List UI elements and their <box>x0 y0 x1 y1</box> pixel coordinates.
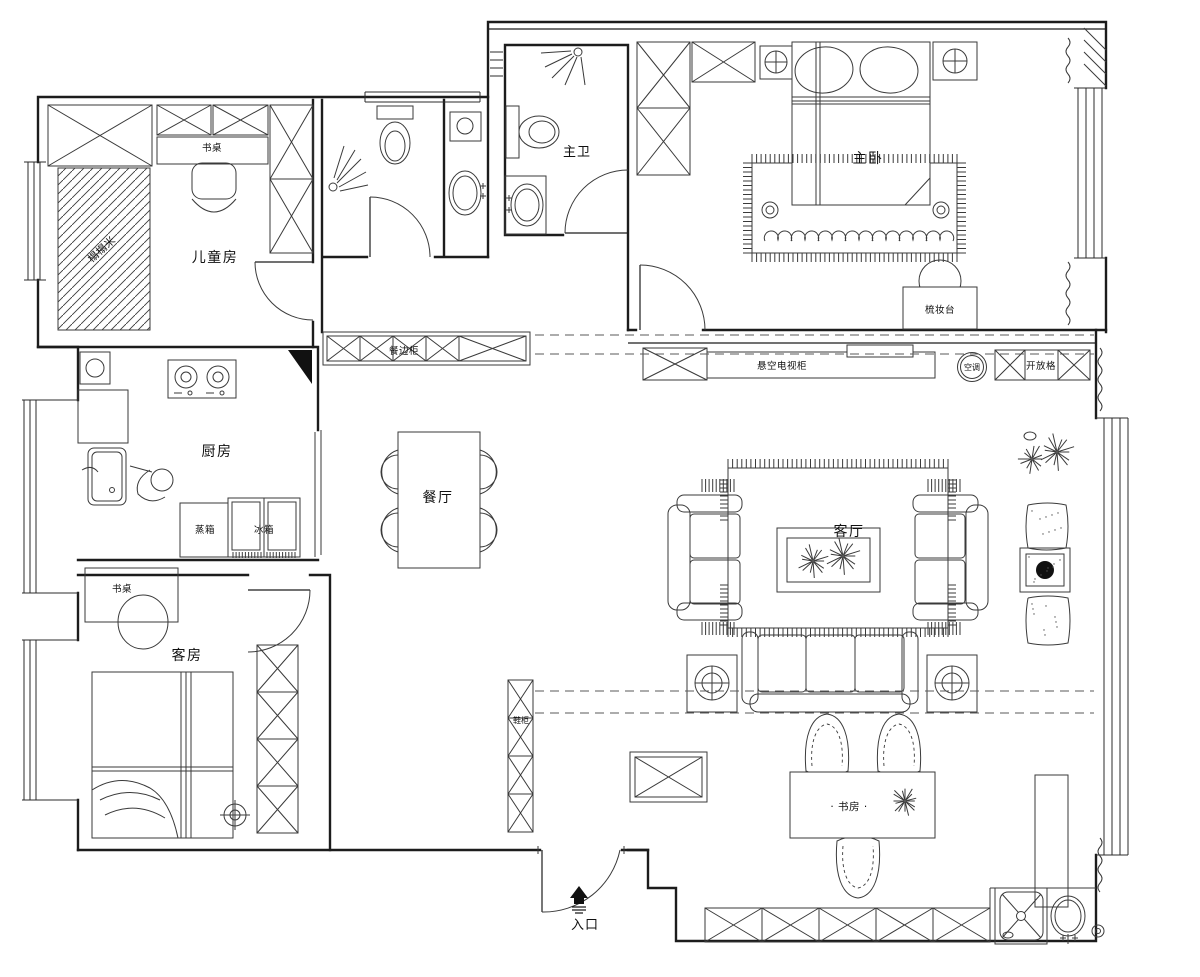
sink-icon <box>82 448 126 505</box>
coffee-table <box>777 528 880 592</box>
tv-icon <box>847 345 913 357</box>
label-steam-oven: 蒸箱 <box>195 524 215 536</box>
label-dining-room: 餐厅 <box>423 490 454 506</box>
bed-icon <box>92 672 233 838</box>
label-dressing-table: 梳妆台 <box>925 304 955 316</box>
label-open-shelf: 开放格 <box>1026 360 1056 372</box>
room-master-bath <box>505 48 585 234</box>
sofa-left <box>668 495 742 620</box>
room-children <box>48 105 313 330</box>
room-living <box>668 432 1070 712</box>
drain-icon <box>1092 925 1104 937</box>
bed-icon <box>792 42 930 205</box>
ceiling-lamp-icon <box>760 46 793 79</box>
label-guest-desk: 书桌 <box>112 583 132 595</box>
dressing-table <box>903 260 977 329</box>
sofa-main <box>742 632 918 712</box>
door-children <box>255 262 313 320</box>
washing-machine-icon <box>995 888 1047 944</box>
label-master-bedroom: 主卧 <box>853 151 884 167</box>
label-children-room: 儿童房 <box>192 249 239 266</box>
label-guest-room: 客房 <box>172 647 203 664</box>
door-master-bath <box>565 170 628 233</box>
toilet-icon <box>506 106 519 158</box>
side-table <box>687 655 737 712</box>
shower-icon <box>541 48 585 85</box>
toilet-icon <box>377 106 413 119</box>
water-heater-icon <box>450 112 481 141</box>
flue-icon <box>288 350 312 384</box>
label-kitchen: 厨房 <box>202 444 233 460</box>
floor-plan: 书桌 榻榻米 儿童房 主卫 主卧 梳妆台 餐边柜 悬空电视柜 空调 开放格 厨房… <box>0 0 1200 977</box>
label-sideboard: 餐边柜 <box>389 345 419 357</box>
label-master-bath: 主卫 <box>563 145 591 160</box>
label-entrance: 入口 <box>571 918 599 933</box>
basin-icon <box>449 171 481 215</box>
fish-tank <box>1020 548 1070 592</box>
ceiling-dashed-lines <box>535 335 1094 713</box>
label-shoe-cabinet: 鞋柜 <box>513 715 529 725</box>
room-bath <box>329 106 486 215</box>
ceiling-lamp-icon <box>933 42 977 80</box>
label-children-desk: 书桌 <box>202 142 222 154</box>
label-living-room: 客厅 <box>834 523 865 540</box>
shower-icon <box>329 146 368 191</box>
chair-icon <box>192 199 236 212</box>
label-air-conditioner: 空调 <box>964 362 980 372</box>
tv-wall <box>643 345 1090 382</box>
counter <box>78 390 128 443</box>
vent-icon <box>80 352 110 384</box>
bench-icon <box>1035 775 1068 907</box>
label-tv-cabinet: 悬空电视柜 <box>757 360 807 372</box>
floor-plan-drawing: 书桌 榻榻米 儿童房 主卫 主卧 梳妆台 餐边柜 悬空电视柜 空调 开放格 厨房… <box>0 0 1200 977</box>
balcony <box>705 888 1104 944</box>
side-table <box>927 655 977 712</box>
person-icon <box>130 466 173 501</box>
label-fridge: 冰箱 <box>254 524 274 536</box>
label-study: · 书房 · <box>830 800 867 813</box>
chair-icon <box>192 163 236 199</box>
door-master-suite <box>640 265 705 330</box>
door-guest <box>248 590 310 652</box>
door-bath <box>370 197 430 257</box>
plant-icon <box>1024 432 1036 440</box>
entrance-area <box>508 680 588 913</box>
stove-icon <box>168 360 236 398</box>
